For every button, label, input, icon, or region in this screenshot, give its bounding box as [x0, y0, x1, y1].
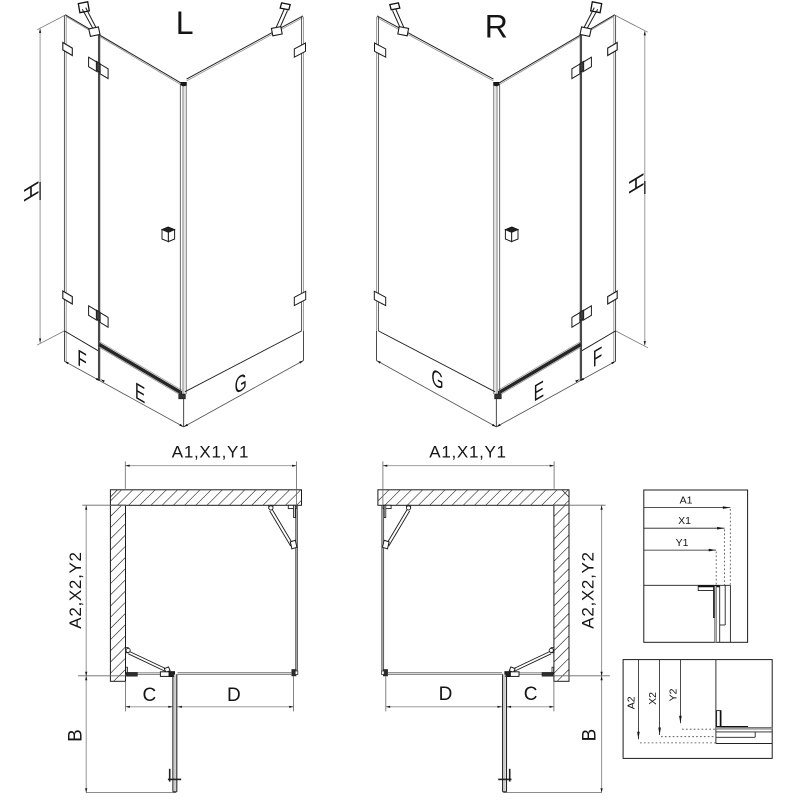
svg-text:B: B: [66, 729, 87, 742]
svg-text:C: C: [524, 684, 538, 705]
svg-text:A1,X1,Y1: A1,X1,Y1: [429, 443, 506, 462]
svg-text:D: D: [227, 685, 241, 706]
svg-text:L: L: [176, 5, 194, 41]
svg-text:D: D: [439, 684, 453, 705]
svg-text:C: C: [143, 685, 157, 706]
svg-text:A1,X1,Y1: A1,X1,Y1: [172, 443, 249, 462]
svg-text:Y1: Y1: [676, 537, 689, 549]
svg-text:X1: X1: [678, 515, 691, 527]
svg-text:B: B: [580, 729, 601, 742]
svg-text:A2,X2,Y2: A2,X2,Y2: [66, 551, 85, 628]
svg-text:R: R: [485, 8, 508, 44]
svg-text:X2: X2: [647, 692, 659, 705]
svg-text:A2,X2,Y2: A2,X2,Y2: [579, 551, 598, 628]
svg-text:A2: A2: [625, 696, 637, 709]
svg-text:A1: A1: [680, 495, 693, 507]
svg-text:Y2: Y2: [667, 688, 679, 701]
